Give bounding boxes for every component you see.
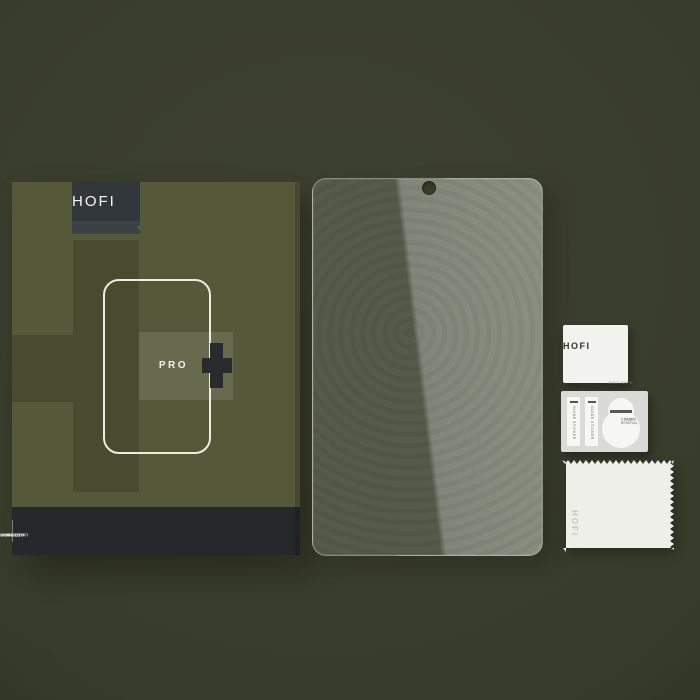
brand-tagline-strip: COMPLETE PROTECTION: [72, 221, 140, 234]
guide-sticker: GUIDE STICKER: [585, 397, 598, 446]
cloth-zigzag-shape: [562, 460, 674, 552]
dust-removal-sticker: [602, 410, 640, 448]
microfiber-cloth: HOFI: [562, 460, 676, 554]
box-feature-bar: ANTI FINGERPRINT SCRATCH RESISTANT IMPAC…: [12, 507, 300, 555]
sticker-sheet: GUIDE STICKER GUIDE STICKER DUST REMOVAL…: [561, 391, 648, 452]
sticker-dash: [610, 410, 632, 413]
dust-removal-label-line2: STICKER: [621, 418, 636, 422]
wet-wipe-brand: HOFI: [563, 341, 591, 351]
sticker-dash: [588, 401, 596, 403]
brand-tagline: COMPLETE PROTECTION: [138, 225, 140, 231]
glass-reflection-rings: [313, 179, 542, 555]
box-side-edge: [295, 182, 300, 555]
camera-hole-icon: [422, 181, 436, 195]
model-label: PRO: [156, 360, 188, 371]
wet-wipe-sachet: HOFI WET WIPE: [563, 325, 628, 383]
tempered-glass: [312, 178, 543, 556]
guide-sticker-label: GUIDE STICKER: [572, 406, 576, 440]
brand-plate: HOFI COMPLETE PROTECTION: [72, 182, 140, 234]
plus-icon: [202, 358, 232, 373]
guide-sticker-label: GUIDE STICKER: [590, 406, 594, 440]
guide-sticker-label-wrap: GUIDE STICKER: [567, 406, 580, 446]
wet-wipe-label: WET WIPE: [608, 380, 633, 385]
product-box: HOFI COMPLETE PROTECTION PRO ANTI FINGER…: [12, 182, 300, 555]
guide-sticker-label-wrap: GUIDE STICKER: [585, 406, 598, 446]
footer-divider: [12, 520, 13, 542]
brand-logo: HOFI: [72, 193, 116, 210]
sticker-dash: [570, 401, 578, 403]
cloth-brand: HOFI: [570, 510, 579, 537]
box-art-left-band: [12, 335, 73, 402]
product-scene: HOFI COMPLETE PROTECTION PRO ANTI FINGER…: [0, 0, 700, 700]
guide-sticker: GUIDE STICKER: [567, 397, 580, 446]
feature-line2: ABSORPTION: [0, 533, 28, 537]
